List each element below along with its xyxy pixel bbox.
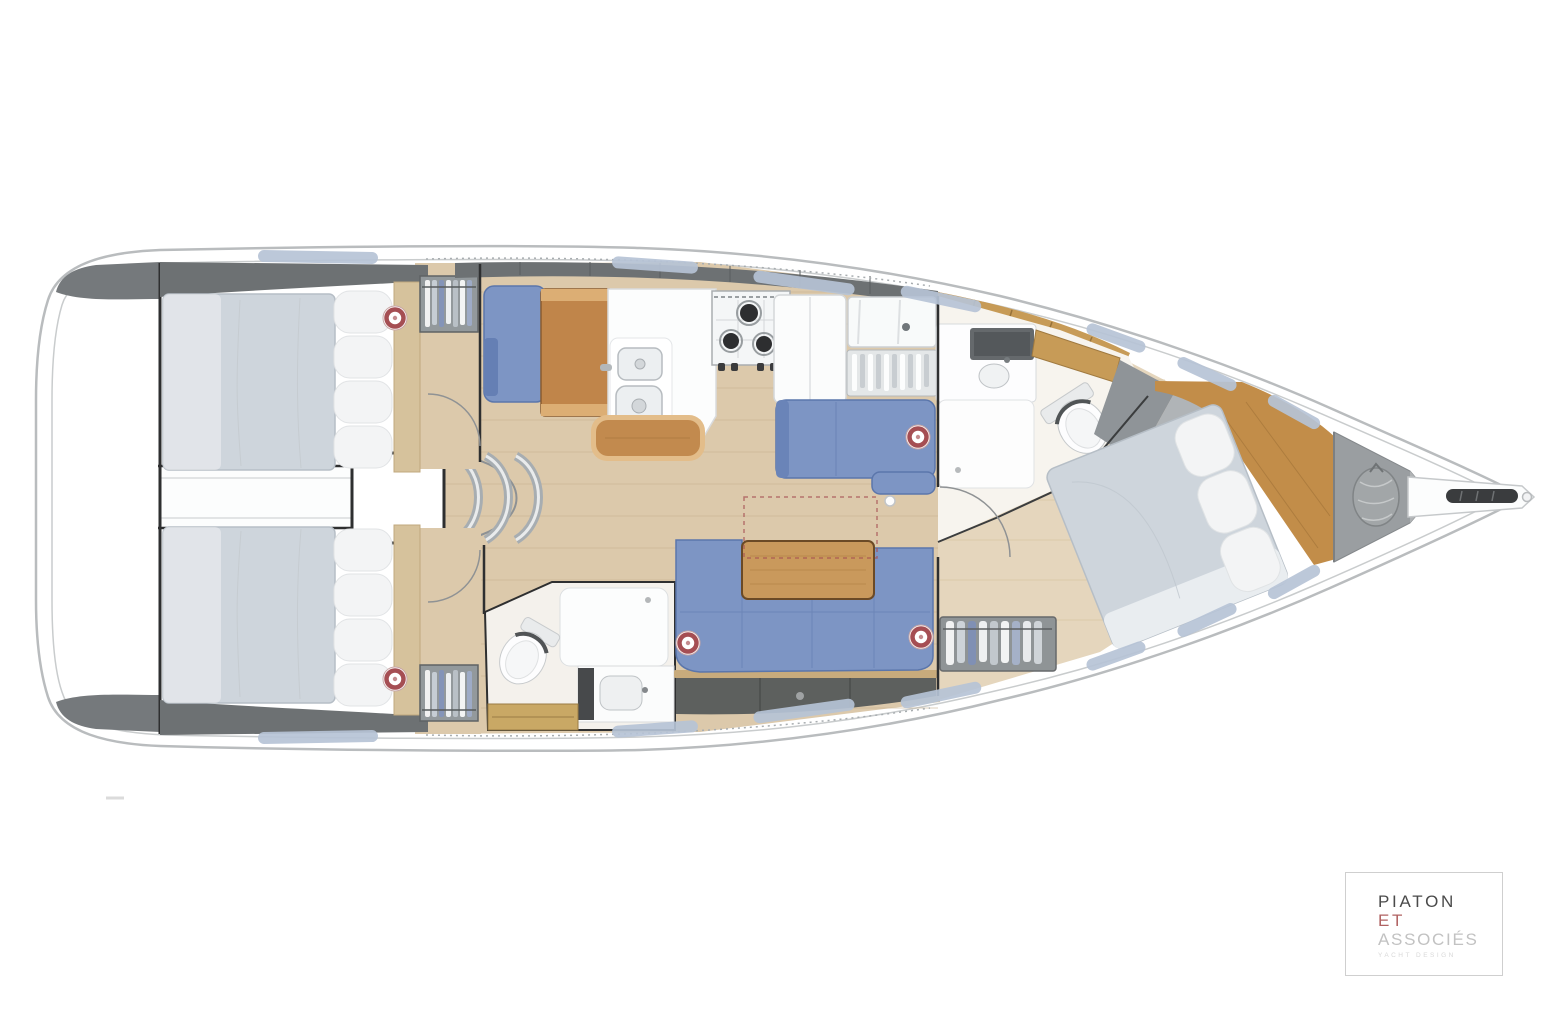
- galley-fridge: [774, 295, 846, 403]
- designer-logo: PIATON ET ASSOCIÉS YACHT DESIGN: [1345, 872, 1503, 976]
- aft-head: [485, 582, 675, 730]
- aft-cabin-port: [160, 262, 481, 472]
- logo-line-associes: ASSOCIÉS: [1378, 930, 1502, 949]
- forestay-fitting: [1523, 493, 1532, 502]
- head-sink: [600, 676, 642, 710]
- shower-pan: [938, 400, 1034, 488]
- faucet-icon: [902, 323, 910, 331]
- burner-icon: [756, 336, 772, 352]
- head-sink: [979, 364, 1009, 388]
- hanging-locker: [940, 617, 1056, 671]
- galley-island-bench: [591, 415, 705, 461]
- burner-icon: [740, 304, 758, 322]
- nav-seat-side: [484, 338, 498, 396]
- portlight-icon: [906, 425, 930, 449]
- logo-tagline: YACHT DESIGN: [1378, 952, 1502, 959]
- faucet-icon: [642, 687, 648, 693]
- yacht-floor-plan: [0, 0, 1552, 1024]
- faucet-icon: [600, 364, 612, 371]
- drain-icon: [645, 597, 651, 603]
- drain-icon: [955, 467, 961, 473]
- anchor-roller: [1446, 489, 1518, 503]
- galley-aft-counter: [848, 297, 936, 347]
- table-leg-socket: [885, 496, 895, 506]
- logo-line-piaton: PIATON: [1378, 892, 1502, 911]
- portlight-icon: [676, 631, 700, 655]
- logo-line-et: ET: [1378, 911, 1502, 930]
- saloon-sofa: [674, 540, 938, 714]
- locker-knob-icon: [796, 692, 804, 700]
- portlight-icon: [909, 625, 933, 649]
- dish-rack: [847, 350, 937, 396]
- bowsprit: [1408, 477, 1534, 517]
- stern-bulwark-port: [56, 262, 160, 299]
- chart-table: [541, 289, 613, 416]
- shower-pan: [560, 588, 668, 666]
- burner-icon: [723, 333, 739, 349]
- aft-cabin-starboard: [160, 525, 481, 735]
- faucet-icon: [1004, 357, 1010, 363]
